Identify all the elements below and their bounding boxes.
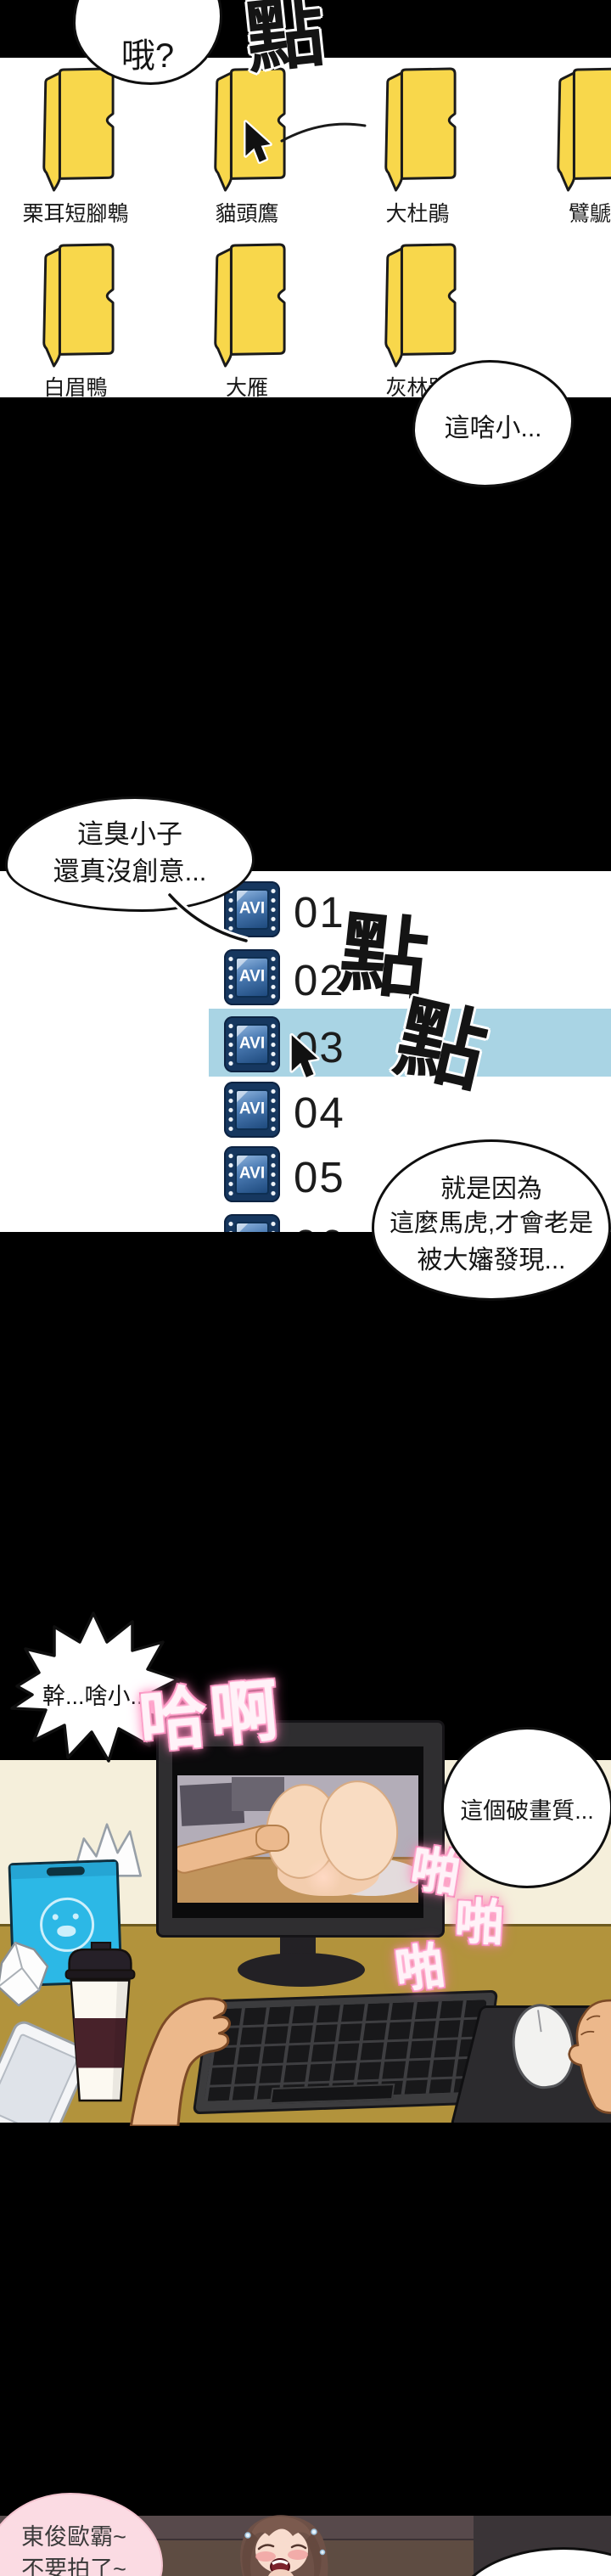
filmstrip-holes xyxy=(227,1151,235,1197)
folder-icon[interactable] xyxy=(34,66,117,195)
crumpled-paper xyxy=(0,1938,53,2011)
speech-text: 這麼馬虎,才會老是 xyxy=(374,1203,608,1239)
filmstrip-holes xyxy=(269,1151,277,1197)
mouse-seam xyxy=(537,2010,542,2032)
speech-text: 還真沒創意... xyxy=(8,850,252,888)
speech-text: 被大嬸發現... xyxy=(374,1239,608,1276)
avi-badge: AVI xyxy=(235,1154,269,1195)
avi-file-icon-selected[interactable]: AVI xyxy=(224,1016,280,1072)
speech-text: 這臭小子 xyxy=(8,813,252,851)
avi-badge: AVI xyxy=(235,957,269,998)
bubble-tail xyxy=(166,893,251,948)
avi-badge: AVI xyxy=(235,1089,269,1130)
folder-icon[interactable] xyxy=(376,242,459,371)
avi-file-icon[interactable]: AVI xyxy=(224,949,280,1005)
panel-black-3 xyxy=(0,2123,611,2516)
sfx-click-text: 點 xyxy=(242,0,328,79)
cursor-icon xyxy=(287,1032,322,1083)
folder-icon[interactable] xyxy=(376,66,459,195)
folder-label: 鷿鷈 xyxy=(505,197,611,228)
cursor-icon xyxy=(241,119,275,168)
video-hand xyxy=(255,1825,289,1852)
speech-text: 哦? xyxy=(76,28,220,77)
filmstrip-holes xyxy=(269,1021,277,1067)
folder-icon[interactable] xyxy=(205,242,289,371)
speech-text: 不要拍了~ xyxy=(0,2551,161,2576)
monitor-stand-base xyxy=(238,1953,365,1987)
folder-icon[interactable] xyxy=(34,242,117,371)
keyboard-spacebar xyxy=(270,2084,395,2104)
folder-label: 大杜鵑 xyxy=(333,197,502,228)
filmstrip-holes xyxy=(269,954,277,1000)
speech-bubble-quality: 這個破畫質... xyxy=(441,1727,611,1888)
sfx-slap-text: 啪 xyxy=(454,1898,506,1949)
avi-file-icon[interactable]: AVI xyxy=(224,1082,280,1138)
file-name[interactable]: 01 xyxy=(294,887,345,937)
sfx-moan-text: 哈啊 xyxy=(137,1677,284,1757)
speech-text: 就是因為 xyxy=(374,1167,608,1205)
tissue-box-slot xyxy=(47,1866,85,1876)
left-hand xyxy=(117,1963,249,2126)
folder-label: 貓頭鷹 xyxy=(162,197,332,228)
sfx-slap-text: 啪 xyxy=(393,1942,448,1997)
speech-bubble-careless: 就是因為 這麼馬虎,才會老是 被大嬸發現... xyxy=(372,1139,611,1301)
filmstrip-holes xyxy=(227,1087,235,1133)
avi-badge: AVI xyxy=(235,1024,269,1065)
right-hand xyxy=(550,1988,611,2123)
speech-text: 這啥小... xyxy=(415,407,571,444)
speech-text: 東俊歐霸~ xyxy=(0,2518,161,2551)
file-name[interactable]: 04 xyxy=(294,1088,345,1138)
sfx-click-text: 點 xyxy=(389,993,495,1100)
video-glow xyxy=(305,1859,342,1896)
filmstrip-holes xyxy=(269,1087,277,1133)
filmstrip-holes xyxy=(269,886,277,932)
speech-text: 這個破畫質... xyxy=(444,1792,610,1825)
woman-face xyxy=(219,2513,350,2576)
file-name[interactable]: 05 xyxy=(294,1152,345,1202)
speech-bubble-oh: 哦? xyxy=(73,0,222,85)
video-player[interactable] xyxy=(177,1775,418,1903)
avi-file-icon[interactable]: AVI xyxy=(224,1146,280,1202)
folder-label: 栗耳短腳鵯 xyxy=(0,197,160,228)
filmstrip-holes xyxy=(227,1021,235,1067)
comic-page: 栗耳短腳鵯 貓頭鷹 大杜鵑 鷿鷈 白眉鴨 大雁 灰林鴞 點 哦? 這啥小... … xyxy=(0,0,611,2576)
folder-icon[interactable] xyxy=(548,66,611,195)
click-motion-line xyxy=(280,114,368,146)
filmstrip-holes xyxy=(227,954,235,1000)
